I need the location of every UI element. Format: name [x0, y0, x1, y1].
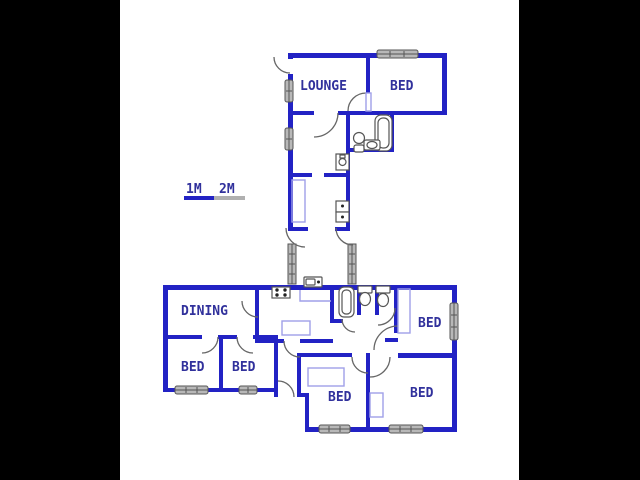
scale-bar-2m-segment: [214, 196, 245, 200]
cupboard-icon: [370, 393, 383, 417]
room-label-bed-top: BED: [390, 79, 413, 94]
toilet-icon: [376, 286, 390, 307]
scale-label-1m: 1M: [186, 182, 202, 197]
door-arc: [278, 381, 294, 397]
door-arc: [237, 337, 253, 353]
window-icon: [285, 128, 293, 150]
door-arc: [352, 357, 368, 373]
toilet-icon: [354, 133, 365, 153]
window-icon: [377, 50, 418, 58]
scale-bar-1m-segment: [184, 196, 214, 200]
floor-plan-drawing: [0, 0, 640, 480]
door-arc: [314, 113, 338, 137]
room-label-lounge: LOUNGE: [300, 79, 347, 94]
stove-icon: [272, 287, 290, 298]
door-arc: [378, 308, 395, 325]
room-label-bed-bottom-middle: BED: [328, 390, 351, 405]
bathtub-icon: [339, 287, 354, 317]
scale-label-2m: 2M: [219, 182, 235, 197]
window-icon: [239, 386, 257, 394]
kitchen-counter-icon: [282, 321, 310, 335]
room-label-bed-middle: BED: [232, 360, 255, 375]
cupboard-icon: [398, 289, 410, 333]
room-label-bed-right: BED: [418, 316, 441, 331]
basin-icon: [364, 140, 380, 150]
window-icon: [285, 80, 293, 102]
door-arc: [348, 93, 366, 111]
connector-screen-icon: [288, 244, 296, 284]
window-icon: [319, 425, 350, 433]
door-arc: [342, 319, 355, 332]
door-arc: [202, 337, 218, 353]
cupboard-icon: [308, 368, 344, 386]
toilet-icon: [358, 286, 372, 306]
room-label-bed-left: BED: [181, 360, 204, 375]
double-sink-icon: [336, 201, 349, 222]
window-icon: [450, 303, 458, 340]
geyser-icon: [336, 154, 349, 170]
kitchen-sink-icon: [304, 277, 322, 287]
window-icon: [389, 425, 423, 433]
kitchen-counter-icon: [300, 290, 331, 301]
door-arc: [274, 57, 290, 73]
window-icon: [175, 386, 208, 394]
floor-plan-stage: LOUNGE BED DINING BED BED BED BED BED 1M…: [0, 0, 640, 480]
room-label-bed-bottom-right: BED: [410, 386, 433, 401]
room-label-dining: DINING: [181, 304, 228, 319]
wardrobe-icon: [292, 180, 305, 222]
connector-screen-icon: [348, 244, 356, 284]
door-arc: [370, 357, 390, 377]
windows: [175, 50, 458, 433]
